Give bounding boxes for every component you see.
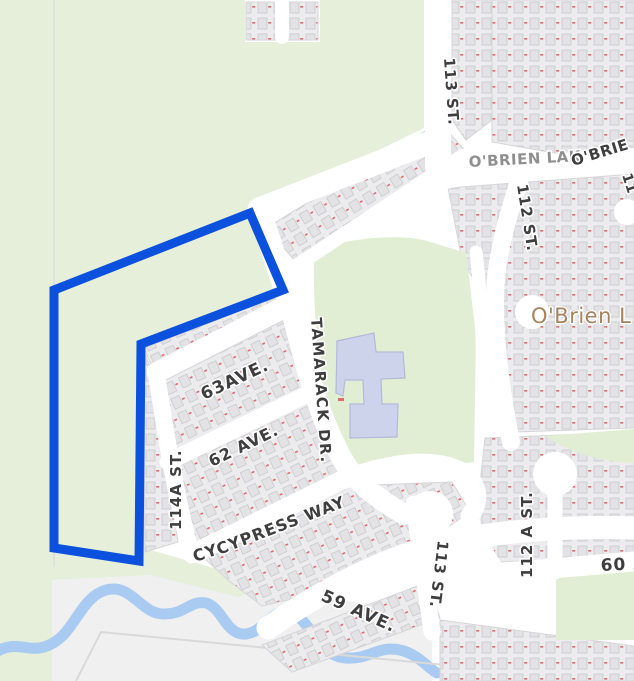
- map-layers: 113 ST.O'BRIEN LAKO'BRIE11112 ST.O'Brien…: [0, 0, 634, 681]
- street-label-112-a-st: 112 A ST.: [518, 491, 536, 578]
- street-label-114a-st: 114A ST.: [167, 449, 185, 530]
- building-number: [338, 398, 344, 401]
- cul-de-sac: [533, 452, 577, 496]
- map-canvas[interactable]: 113 ST.O'BRIEN LAKO'BRIE11112 ST.O'Brien…: [0, 0, 634, 681]
- map-view[interactable]: 113 ST.O'BRIEN LAKO'BRIE11112 ST.O'Brien…: [0, 0, 634, 681]
- street-label-60-ave: 60 AVE.: [600, 552, 634, 576]
- green-patch: [556, 567, 634, 640]
- street-label-obrien-lake-name: O'Brien L: [531, 304, 631, 328]
- road: [476, 252, 483, 432]
- residential-block: [492, 0, 634, 154]
- cul-de-sac: [407, 491, 453, 537]
